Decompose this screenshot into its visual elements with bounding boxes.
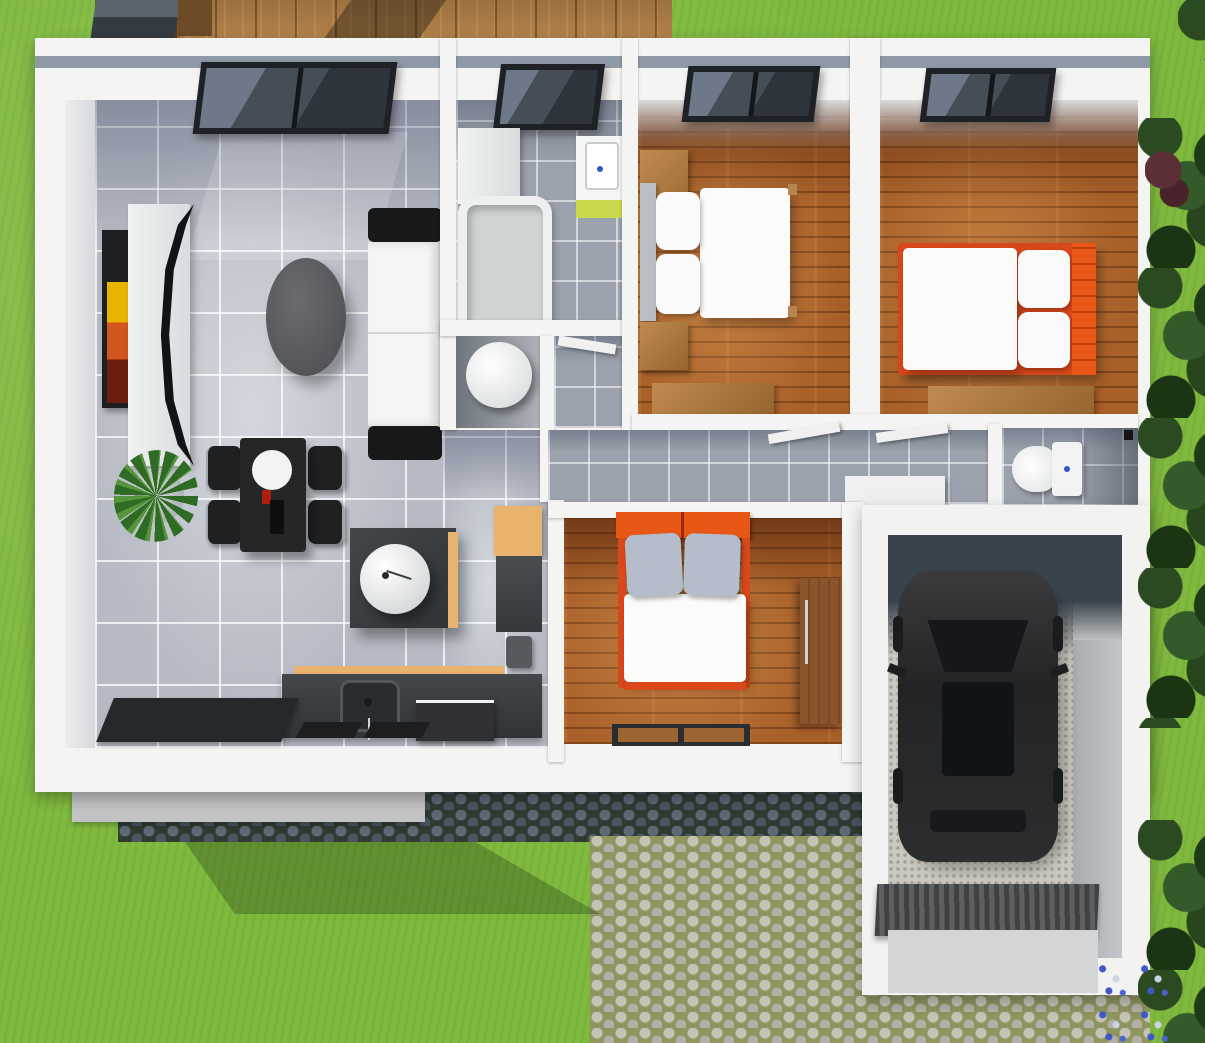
doormat-insert [684,728,744,742]
sofa [368,208,442,460]
bed-post [788,306,797,317]
bedroom3-duvet [624,594,746,682]
sofa-armrest [368,426,442,460]
vanity-sink [576,136,624,200]
garage-door-ramp [875,884,1100,936]
tall-cabinet-top [494,506,542,556]
bedroom1-pillow [656,254,700,314]
dining-chair [206,446,242,490]
bedroom1-dresser [652,383,774,415]
wall-bath-bedroom1 [622,38,638,430]
island-wood-edge [448,532,458,628]
entrance-doormat [96,698,299,742]
bedroom1-headboard [640,183,656,321]
toilet-tank [1052,442,1082,496]
dining-chair [308,446,344,490]
doormat-insert [618,728,678,742]
bed-post [788,184,797,195]
dining-table [240,438,306,552]
wall-hall-toilet [988,424,1002,506]
bedroom1-pillow [656,192,700,250]
deck-wood-box [178,0,212,36]
bathroom-skylight [493,64,605,130]
sink-drain [364,698,372,706]
wall-living-bath [440,38,456,430]
window-glass [500,70,599,124]
bedroom3-footboard [624,682,746,690]
headboard-split [681,512,684,538]
blue-flower-patch [1090,955,1170,1043]
bedroom1-window [682,66,821,122]
sofa-cushions [368,242,442,426]
dishwasher [416,700,494,741]
bedroom3-pillow [683,533,741,597]
car-wheel [1053,768,1063,804]
washing-machine [466,342,532,408]
car-wheel [1053,616,1063,652]
car-wheel [893,616,903,652]
bedroom2-pillow [1018,250,1070,308]
bathtub [458,196,552,340]
dining-chair [308,500,344,544]
bathroom-cabinet [458,128,520,204]
wall-bedroom1-bedroom2 [850,38,880,430]
toilet-door-hinge [1124,430,1133,440]
bedroom2-headboard [1072,243,1096,375]
bedroom2-pillow [1018,312,1070,368]
car [898,570,1058,862]
bedroom3-doormat [612,724,750,746]
vanity-lime-front [576,200,624,218]
car-wheel [893,768,903,804]
bedroom2-duvet [903,248,1017,370]
hedge-trees [1178,0,1205,60]
bedroom2-window [920,68,1057,122]
living-room-window [193,62,398,134]
table-runner [270,500,284,534]
wall-bath-closet [440,320,638,336]
tall-cabinet-body [496,556,542,632]
toilet-flush-dot [1064,466,1070,472]
bedroom2-desk [928,386,1094,416]
bedroom1-duvet [700,188,790,318]
kitchen-bin [506,636,532,668]
dining-chair [206,500,242,544]
coffee-table [266,258,346,376]
wall-bedroom3-right [842,502,864,762]
cooktop-mat [364,722,431,738]
floor-plan-render [0,0,1205,1043]
vanity-tap-dot [597,166,603,172]
cooktop-mat [296,722,363,738]
bedroom1-nightstand [640,322,688,370]
living-room-left-wall-face [65,100,95,748]
bedroom3-wardrobe [800,578,842,724]
car-rear-window [930,810,1026,832]
table-plate [252,450,292,490]
car-roof-glass [942,682,1014,776]
sofa-armrest [368,208,442,242]
island-faucet-base [382,572,389,579]
sofa-seam [368,332,442,334]
wardrobe-handle [805,600,808,664]
entry-step [72,792,425,822]
island-basin [360,544,430,614]
bedroom3-pillow [624,533,683,598]
red-bush [1145,140,1190,215]
garage-entry-concrete [888,930,1098,993]
wall-bedroom3-left [548,500,564,762]
